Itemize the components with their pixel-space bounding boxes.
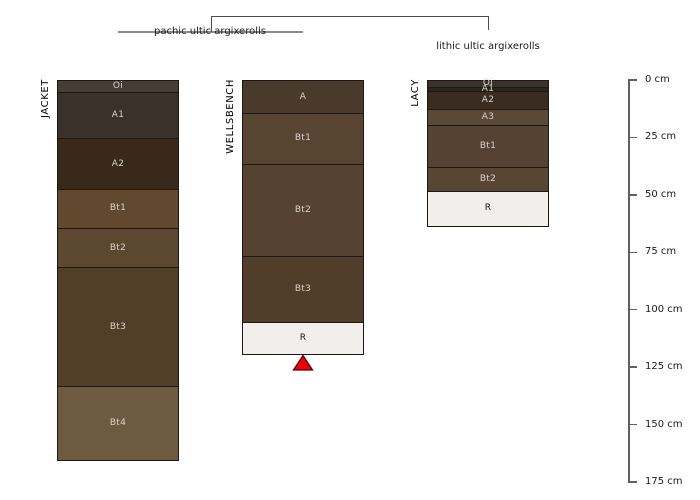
horizon-band-lacy-bt2: Bt2 [428,167,548,191]
horizon-label-wellsbench-bt2: Bt2 [295,206,311,215]
profile-column-jacket: OiA1A2Bt1Bt2Bt3Bt4 [57,80,179,461]
profile-title-jacket: JACKET [40,79,52,118]
bracket-top-line [211,16,490,17]
depth-tick [628,309,637,311]
horizon-band-jacket-a2: A2 [58,138,178,189]
horizon-label-lacy-a3: A3 [482,113,494,122]
depth-tick [628,137,637,139]
profile-column-wellsbench: ABt1Bt2Bt3R [242,80,364,355]
depth-tick-label: 125 cm [645,361,683,373]
taxon-label-pachic: pachic ultic argixerolls [110,26,310,38]
bracket-right-drop [488,16,489,30]
horizon-band-wellsbench-a: A [243,81,363,113]
depth-tick [628,252,637,254]
horizon-band-jacket-a1: A1 [58,92,178,138]
horizon-label-wellsbench-bt3: Bt3 [295,285,311,294]
horizon-label-jacket-bt3: Bt3 [110,323,126,332]
horizon-band-wellsbench-r: R [243,322,363,354]
horizon-label-wellsbench-bt1: Bt1 [295,134,311,143]
depth-tick-label: 75 cm [645,246,676,258]
horizon-band-lacy-a3: A3 [428,109,548,125]
depth-tick [628,366,637,368]
horizon-label-jacket-a1: A1 [112,111,124,120]
horizon-label-jacket-bt4: Bt4 [110,419,126,428]
depth-tick-label: 25 cm [645,131,676,143]
horizon-label-lacy-r: R [485,204,492,213]
profile-column-lacy: OiA1A2A3Bt1Bt2R [427,80,549,227]
taxon-label-lithic: lithic ultic argixerolls [388,41,588,53]
horizon-band-jacket-bt2: Bt2 [58,228,178,267]
horizon-band-lacy-a2: A2 [428,91,548,108]
depth-tick [628,194,637,196]
horizon-label-lacy-bt1: Bt1 [480,142,496,151]
red-triangle-marker-icon [292,354,314,372]
horizon-label-jacket-oi: Oi [113,82,123,91]
horizon-band-jacket-oi: Oi [58,81,178,92]
profile-title-wellsbench: WELLSBENCH [225,79,237,154]
horizon-label-jacket-a2: A2 [112,160,124,169]
horizon-band-jacket-bt4: Bt4 [58,386,178,460]
depth-axis-line [628,80,630,482]
soil-profile-figure: pachic ultic argixerolls lithic ultic ar… [0,0,700,500]
horizon-label-jacket-bt1: Bt1 [110,204,126,213]
horizon-band-wellsbench-bt3: Bt3 [243,256,363,323]
depth-tick-label: 175 cm [645,476,683,488]
horizon-band-wellsbench-bt2: Bt2 [243,164,363,256]
horizon-band-jacket-bt1: Bt1 [58,189,178,228]
horizon-label-lacy-bt2: Bt2 [480,175,496,184]
depth-tick-label: 100 cm [645,304,683,316]
depth-tick-label: 150 cm [645,419,683,431]
horizon-label-wellsbench-a: A [300,93,306,102]
horizon-band-lacy-r: R [428,191,548,225]
depth-tick [628,424,637,426]
depth-tick [628,481,637,483]
depth-tick [628,79,637,81]
profile-title-lacy: LACY [410,79,422,107]
horizon-label-wellsbench-r: R [300,334,307,343]
horizon-label-lacy-a2: A2 [482,96,494,105]
horizon-band-wellsbench-bt1: Bt1 [243,113,363,164]
horizon-label-jacket-bt2: Bt2 [110,244,126,253]
horizon-band-lacy-bt1: Bt1 [428,125,548,167]
horizon-band-jacket-bt3: Bt3 [58,267,178,386]
depth-tick-label: 50 cm [645,189,676,201]
depth-tick-label: 0 cm [645,74,670,86]
